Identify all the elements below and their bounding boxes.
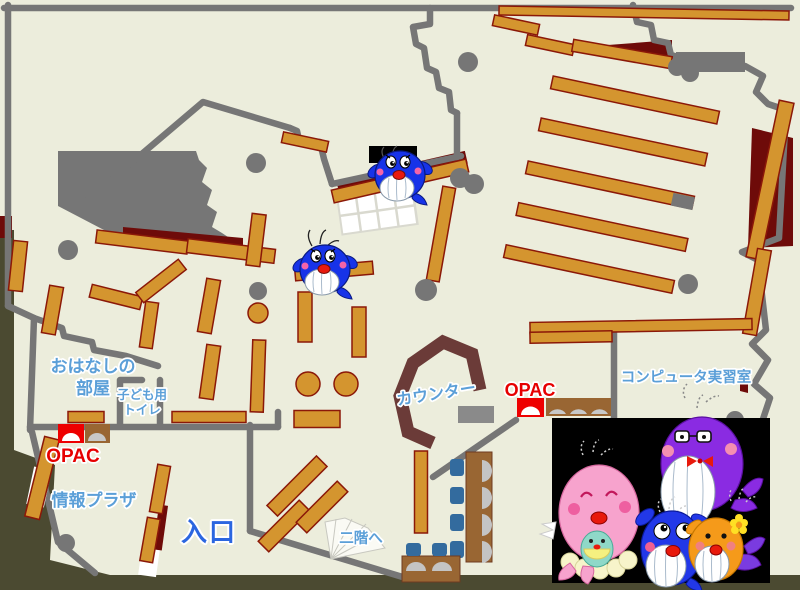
label-to-second-floor: 二階へ: [339, 529, 383, 547]
label-kids-toilet-line2: トイレ: [123, 403, 161, 417]
label-entrance: 入口: [181, 517, 237, 547]
side-desk: [458, 406, 494, 423]
baby-whale-mascot: [581, 531, 613, 567]
label-opac-right: OPAC: [505, 380, 556, 400]
label-storytelling-room-line1: おはなしの: [51, 357, 136, 376]
label-kids-toilet-line1: 子ども用: [117, 388, 167, 402]
label-opac-left: OPAC: [46, 446, 100, 467]
label-computer-room: コンピュータ実習室: [621, 368, 752, 386]
label-storytelling-room-line2: 部屋: [76, 378, 110, 398]
opac-terminal-left: [58, 424, 110, 443]
opac-terminal-right: [517, 398, 611, 417]
library-floor-map: おはなしの 部屋 子ども用 トイレ OPAC 情報プラザ 入口 二階へ カウンタ…: [0, 0, 800, 590]
label-info-plaza: 情報プラザ: [52, 490, 137, 510]
